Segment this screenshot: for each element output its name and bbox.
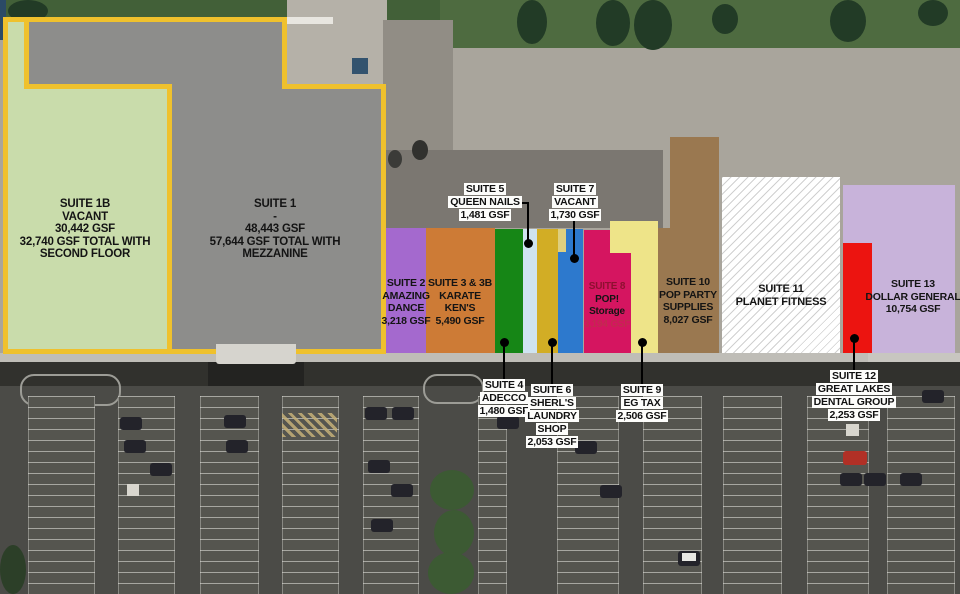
car [150, 463, 172, 476]
suite-9-dot [638, 338, 647, 347]
dock-dumpster [352, 58, 368, 74]
suite-6b-sliver [558, 229, 566, 253]
car [365, 407, 387, 420]
parking-stall-column [807, 396, 869, 594]
car [120, 417, 142, 430]
suite-6-shape [537, 229, 558, 353]
debris [412, 140, 428, 160]
entrance-canopy [216, 344, 296, 364]
suite-4-dot [500, 338, 509, 347]
tree [634, 0, 672, 50]
car-white-roof-top [682, 553, 696, 561]
car [224, 415, 246, 428]
painted-square [846, 424, 859, 436]
car [226, 440, 248, 453]
parking-stall-column [28, 396, 95, 594]
suite-7-leader [573, 221, 575, 258]
suite-9-callout: SUITE 9 EG TAX 2,506 GSF [582, 384, 702, 423]
car [900, 473, 922, 486]
tree [434, 510, 474, 556]
tree [0, 545, 26, 594]
debris [388, 150, 402, 168]
suite-3-label: SUITE 3 & 3B KARATE KEN'S 5,490 GSF [423, 277, 497, 327]
car [368, 460, 390, 473]
suite-12-leader [853, 338, 855, 373]
suite-1-label: SUITE 1 - 48,443 GSF 57,644 GSF TOTAL WI… [195, 198, 355, 261]
tree [517, 0, 547, 44]
car [371, 519, 393, 532]
car [392, 407, 414, 420]
loading-dock-pavement [287, 0, 387, 84]
suite-12-dot [850, 334, 859, 343]
tree [428, 552, 474, 594]
suite-5-dot [524, 239, 533, 248]
car [922, 390, 944, 403]
suite-13-label: SUITE 13 DOLLAR GENERAL 10,754 GSF [856, 278, 960, 316]
car [840, 473, 862, 486]
tree [430, 470, 474, 510]
tree [830, 0, 866, 42]
suite-1b-label: SUITE 1B VACANT 30,442 GSF 32,740 GSF TO… [15, 198, 155, 261]
suite-8-label: SUITE 8 POP! Storage 3,194 GSF [577, 281, 637, 331]
car [600, 485, 622, 498]
parking-stall-column [723, 396, 782, 594]
parking-stall-column [887, 396, 955, 594]
car [124, 440, 146, 453]
car [391, 484, 413, 497]
suite-11-label: SUITE 11 PLANET FITNESS [722, 283, 840, 308]
suite-6-dot [548, 338, 557, 347]
suite-4-leader [503, 342, 505, 381]
suite-10-label: SUITE 10 POP PARTY SUPPLIES 8,027 GSF [650, 276, 726, 326]
dock-white-bar [287, 17, 333, 24]
crosswalk-hatch [282, 413, 337, 437]
suite-7-callout: SUITE 7 VACANT 1,730 GSF [515, 183, 635, 222]
car [864, 473, 886, 486]
suite-4-shape [495, 229, 523, 353]
site-plan: SUITE 1B VACANT 30,442 GSF 32,740 GSF TO… [0, 0, 960, 594]
car-red [843, 451, 867, 465]
suite-7-dot [570, 254, 579, 263]
suite-9-leader [641, 342, 643, 386]
painted-square [127, 484, 139, 496]
tree [712, 4, 738, 34]
tree [596, 0, 630, 46]
tree [918, 0, 948, 26]
suite-11-shape [722, 177, 840, 353]
suite-12-callout: SUITE 12 GREAT LAKES DENTAL GROUP 2,253 … [792, 370, 916, 422]
